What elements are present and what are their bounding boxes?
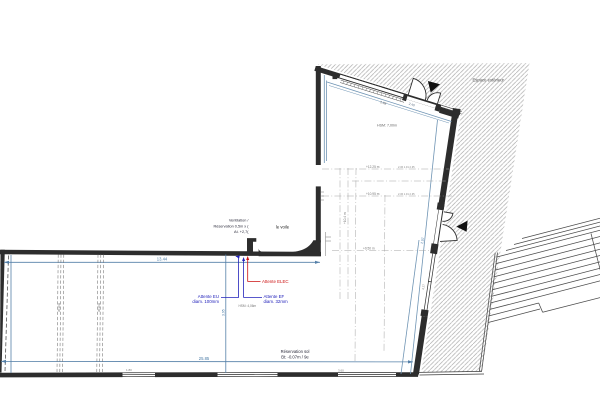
svg-text:3.60: 3.60 <box>338 368 344 372</box>
svg-text:+10.95 m: +10.95 m <box>366 192 380 196</box>
svg-text:2.36 1.01 2.35: 2.36 1.01 2.35 <box>398 165 415 169</box>
svg-text:+9.50 m: +9.50 m <box>363 246 375 250</box>
svg-text:le voile: le voile <box>276 225 290 230</box>
svg-text:Espace extérieur: Espace extérieur <box>473 77 505 82</box>
svg-text:Ventilation /: Ventilation / <box>229 218 250 222</box>
svg-text:Attente ELEC: Attente ELEC <box>262 279 289 284</box>
svg-text:13.44: 13.44 <box>157 257 168 262</box>
svg-text:Réservation 0,5m x (: Réservation 0,5m x ( <box>213 224 249 228</box>
svg-text:25.85: 25.85 <box>199 356 210 361</box>
svg-text:Attente EF: Attente EF <box>264 294 285 299</box>
svg-text:+10.4 m: +10.4 m <box>343 212 347 224</box>
svg-text:Attente EU: Attente EU <box>198 294 219 299</box>
svg-text:1.80: 1.80 <box>126 368 132 372</box>
svg-text:HSM: 4,06m: HSM: 4,06m <box>239 304 257 308</box>
svg-text:HSM: 7,00m: HSM: 7,00m <box>377 124 397 128</box>
svg-text:Bt: -0.07m / 9e: Bt: -0.07m / 9e <box>281 354 309 359</box>
svg-text:diam. 100mm: diam. 100mm <box>192 299 219 304</box>
svg-text:diam. 32mm: diam. 32mm <box>264 299 288 304</box>
svg-text:At. +2,7(: At. +2,7( <box>234 230 249 234</box>
svg-text:JD 2cm: JD 2cm <box>57 302 61 312</box>
svg-text:2.36 1.01 2.35: 2.36 1.01 2.35 <box>398 192 415 196</box>
svg-text:JD 2cm: JD 2cm <box>97 302 101 312</box>
svg-text:3.95: 3.95 <box>222 309 226 316</box>
svg-text:+12.25 m: +12.25 m <box>366 165 380 169</box>
